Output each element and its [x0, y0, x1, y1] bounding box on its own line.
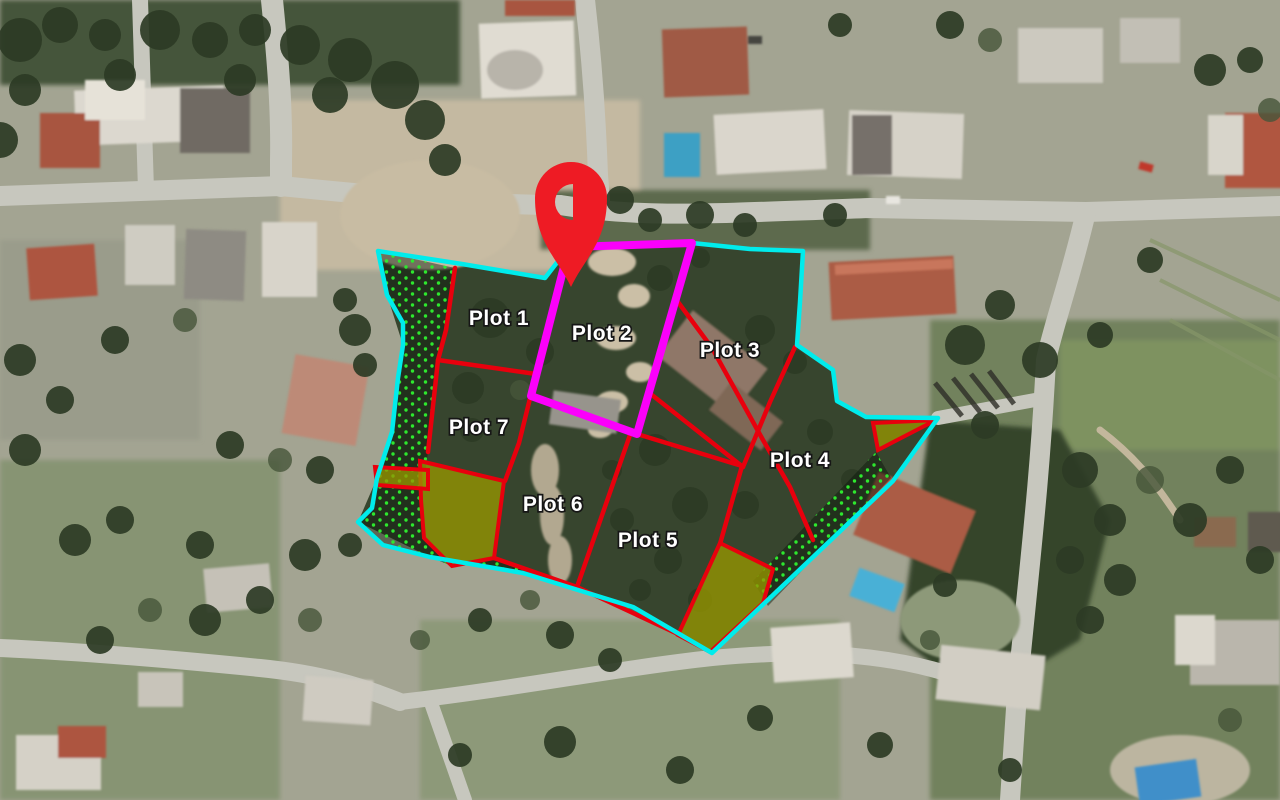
hatch-area-dots — [753, 452, 891, 606]
map-canvas[interactable]: Plot 1Plot 2Plot 3Plot 4Plot 5Plot 6Plot… — [0, 0, 1280, 800]
hatch-area-dots — [430, 557, 712, 653]
plot-label-2: Plot 2 — [572, 322, 632, 345]
plot-divider-line — [720, 466, 742, 544]
plot-label-3: Plot 3 — [700, 339, 760, 362]
plot-label-7: Plot 7 — [449, 416, 509, 439]
plot-label-4: Plot 4 — [770, 449, 830, 472]
plot-divider-line — [494, 558, 678, 634]
plot-divider-line — [652, 395, 743, 467]
hatch-area-tint — [430, 557, 712, 653]
plot-divider-line — [678, 302, 813, 540]
plot-divider-line — [438, 360, 536, 374]
location-pin-icon[interactable] — [535, 162, 607, 287]
plot-divider-line — [577, 435, 630, 587]
olive-area — [678, 543, 773, 652]
plot-label-6: Plot 6 — [523, 493, 583, 516]
plot-overlay: Plot 1Plot 2Plot 3Plot 4Plot 5Plot 6Plot… — [0, 0, 1280, 800]
plot-label-1: Plot 1 — [469, 307, 529, 330]
plot-label-5: Plot 5 — [618, 529, 678, 552]
olive-area — [375, 467, 428, 489]
plot-divider-line — [637, 434, 742, 466]
